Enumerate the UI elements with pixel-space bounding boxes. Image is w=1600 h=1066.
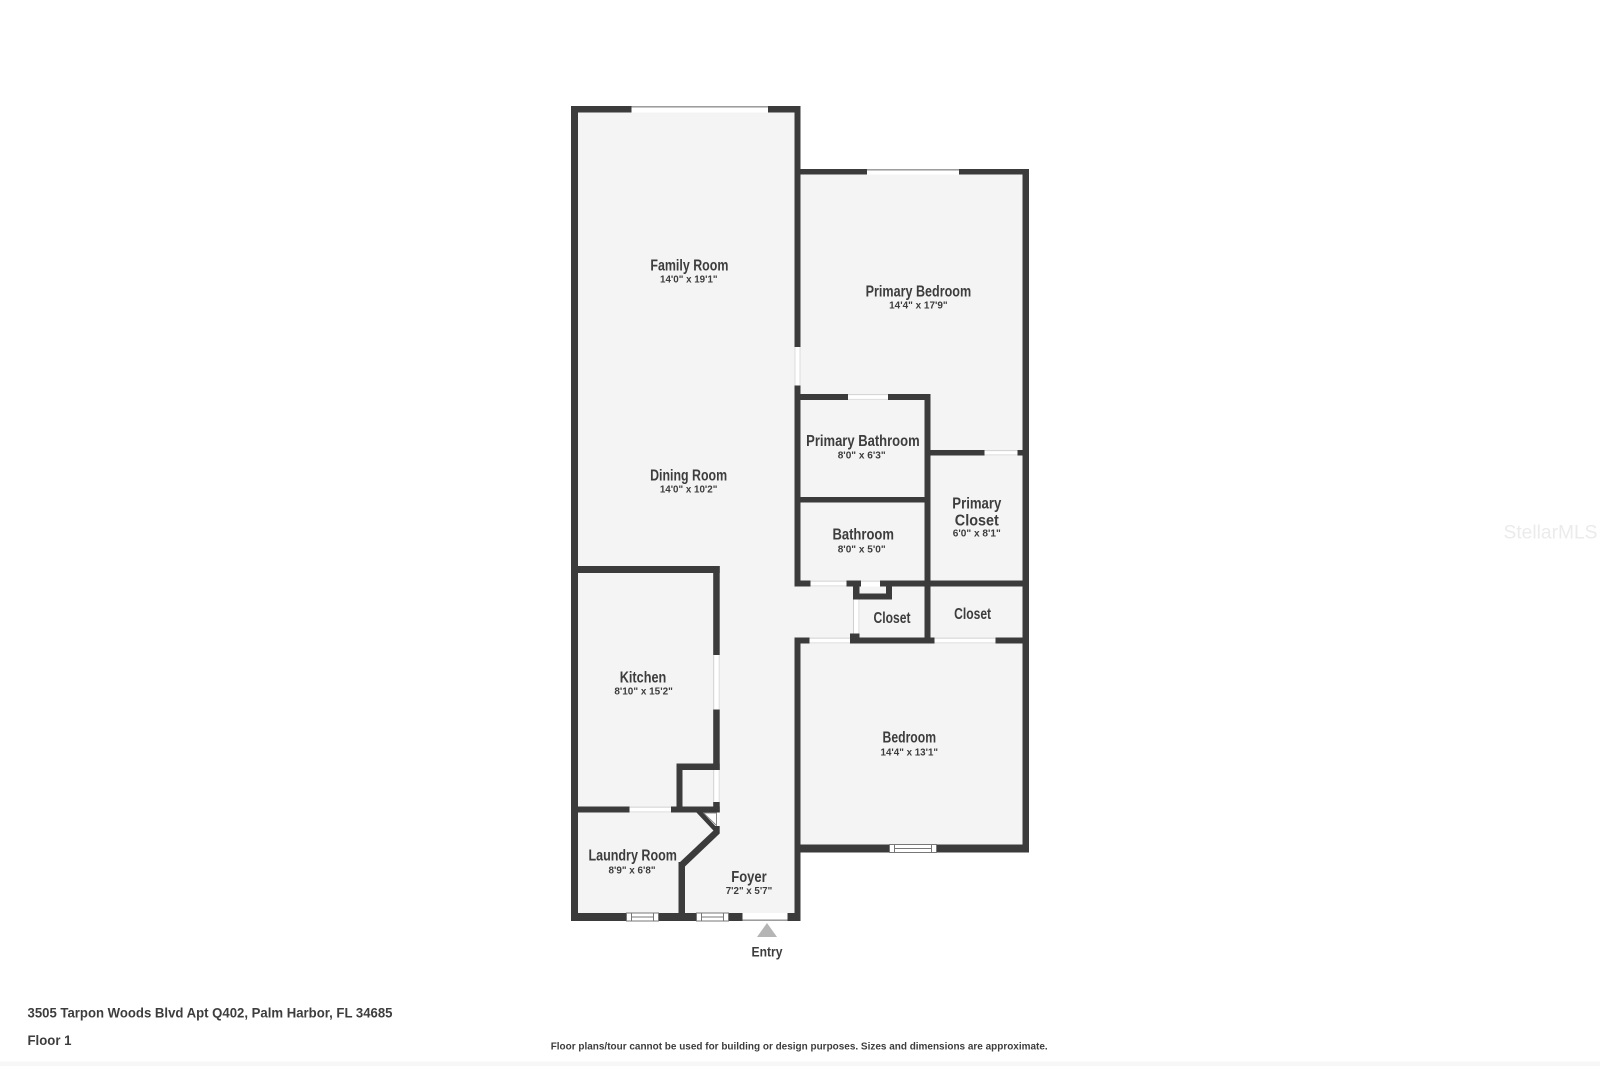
svg-text:3505 Tarpon Woods Blvd Apt Q40: 3505 Tarpon Woods Blvd Apt Q402, Palm Ha… bbox=[28, 1004, 393, 1020]
svg-text:Closet: Closet bbox=[874, 610, 911, 627]
svg-text:Bathroom: Bathroom bbox=[832, 526, 894, 543]
svg-text:7'2" x 5'7": 7'2" x 5'7" bbox=[726, 885, 773, 897]
svg-text:6'0" x 8'1": 6'0" x 8'1" bbox=[953, 527, 1001, 539]
svg-text:Primary Bedroom: Primary Bedroom bbox=[866, 283, 972, 300]
svg-text:8'9" x 6'8": 8'9" x 6'8" bbox=[609, 865, 656, 877]
svg-text:8'0" x 5'0": 8'0" x 5'0" bbox=[838, 543, 886, 555]
svg-text:Kitchen: Kitchen bbox=[620, 669, 667, 686]
svg-text:8'10" x 15'2": 8'10" x 15'2" bbox=[614, 685, 673, 697]
svg-text:Dining Room: Dining Room bbox=[650, 467, 727, 484]
svg-text:Family Room: Family Room bbox=[650, 258, 728, 275]
svg-text:Primary: Primary bbox=[952, 495, 1001, 512]
svg-text:Floor 1: Floor 1 bbox=[28, 1032, 72, 1048]
svg-text:14'4" x 13'1": 14'4" x 13'1" bbox=[881, 747, 939, 759]
svg-text:Bedroom: Bedroom bbox=[883, 729, 937, 746]
svg-text:14'0" x 19'1": 14'0" x 19'1" bbox=[660, 274, 718, 286]
svg-text:Closet: Closet bbox=[954, 606, 991, 623]
svg-text:Foyer: Foyer bbox=[731, 869, 767, 886]
svg-text:14'4" x 17'9": 14'4" x 17'9" bbox=[889, 300, 948, 312]
svg-text:8'0" x 6'3": 8'0" x 6'3" bbox=[838, 449, 886, 461]
svg-text:14'0" x 10'2": 14'0" x 10'2" bbox=[660, 484, 718, 496]
svg-text:Primary Bathroom: Primary Bathroom bbox=[806, 433, 920, 450]
svg-text:Floor plans/tour cannot be use: Floor plans/tour cannot be used for buil… bbox=[551, 1041, 1048, 1053]
svg-text:Entry: Entry bbox=[752, 945, 783, 960]
svg-text:StellarMLS: StellarMLS bbox=[1504, 523, 1598, 544]
svg-text:Laundry Room: Laundry Room bbox=[588, 847, 677, 864]
